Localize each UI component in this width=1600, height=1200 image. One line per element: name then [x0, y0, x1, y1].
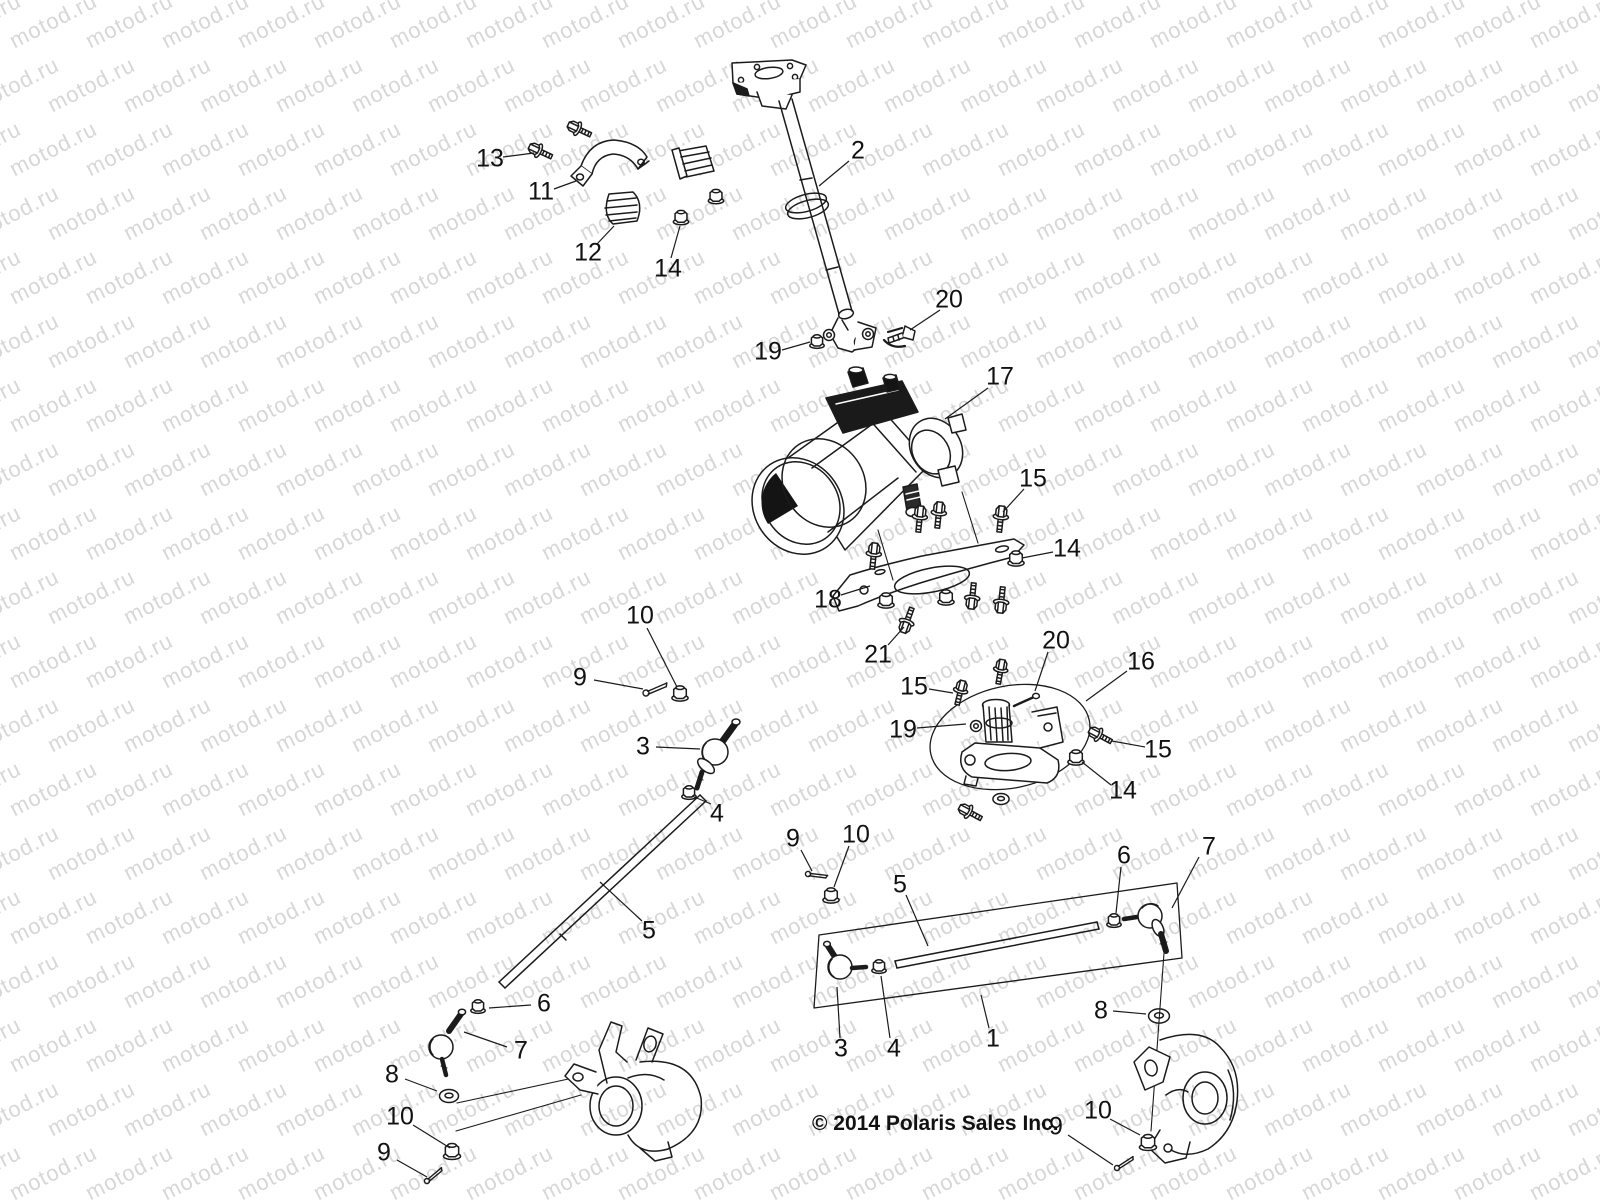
- callout-5: 5: [893, 871, 907, 900]
- callout-7: 7: [1202, 833, 1216, 862]
- callout-18: 18: [814, 586, 842, 615]
- callout-10: 10: [386, 1103, 414, 1132]
- callout-9: 9: [573, 664, 587, 693]
- callout-8: 8: [385, 1061, 399, 1090]
- callout-1: 1: [986, 1025, 1000, 1054]
- callout-7: 7: [514, 1037, 528, 1066]
- callout-2: 2: [851, 137, 865, 166]
- callout-6: 6: [537, 990, 551, 1019]
- callout-20: 20: [1042, 627, 1070, 656]
- callout-layer: 1311121422019171514182110934201615191514…: [0, 0, 1600, 1200]
- callout-13: 13: [476, 145, 504, 174]
- copyright-text: © 2014 Polaris Sales Inc.: [812, 1112, 1059, 1136]
- callout-3: 3: [834, 1035, 848, 1064]
- callout-9: 9: [786, 825, 800, 854]
- callout-12: 12: [574, 239, 602, 268]
- callout-14: 14: [1053, 535, 1081, 564]
- callout-9: 9: [377, 1139, 391, 1168]
- callout-10: 10: [1084, 1097, 1112, 1126]
- callout-16: 16: [1127, 648, 1155, 677]
- callout-3: 3: [636, 733, 650, 762]
- callout-10: 10: [842, 821, 870, 850]
- callout-14: 14: [1109, 777, 1137, 806]
- callout-20: 20: [935, 286, 963, 315]
- callout-19: 19: [754, 338, 782, 367]
- callout-8: 8: [1094, 997, 1108, 1026]
- callout-6: 6: [1117, 842, 1131, 871]
- callout-4: 4: [887, 1035, 901, 1064]
- callout-4: 4: [710, 800, 724, 829]
- callout-11: 11: [528, 178, 554, 207]
- callout-14: 14: [654, 255, 682, 284]
- callout-15: 15: [1019, 465, 1047, 494]
- callout-17: 17: [986, 363, 1014, 392]
- callout-21: 21: [864, 641, 892, 670]
- callout-10: 10: [626, 602, 654, 631]
- callout-5: 5: [642, 917, 656, 946]
- parts-diagram-page: motod.rumotod.rumotod.rumotod.rumotod.ru…: [0, 0, 1600, 1200]
- callout-15: 15: [1144, 736, 1172, 765]
- callout-19: 19: [889, 716, 917, 745]
- callout-15: 15: [900, 673, 928, 702]
